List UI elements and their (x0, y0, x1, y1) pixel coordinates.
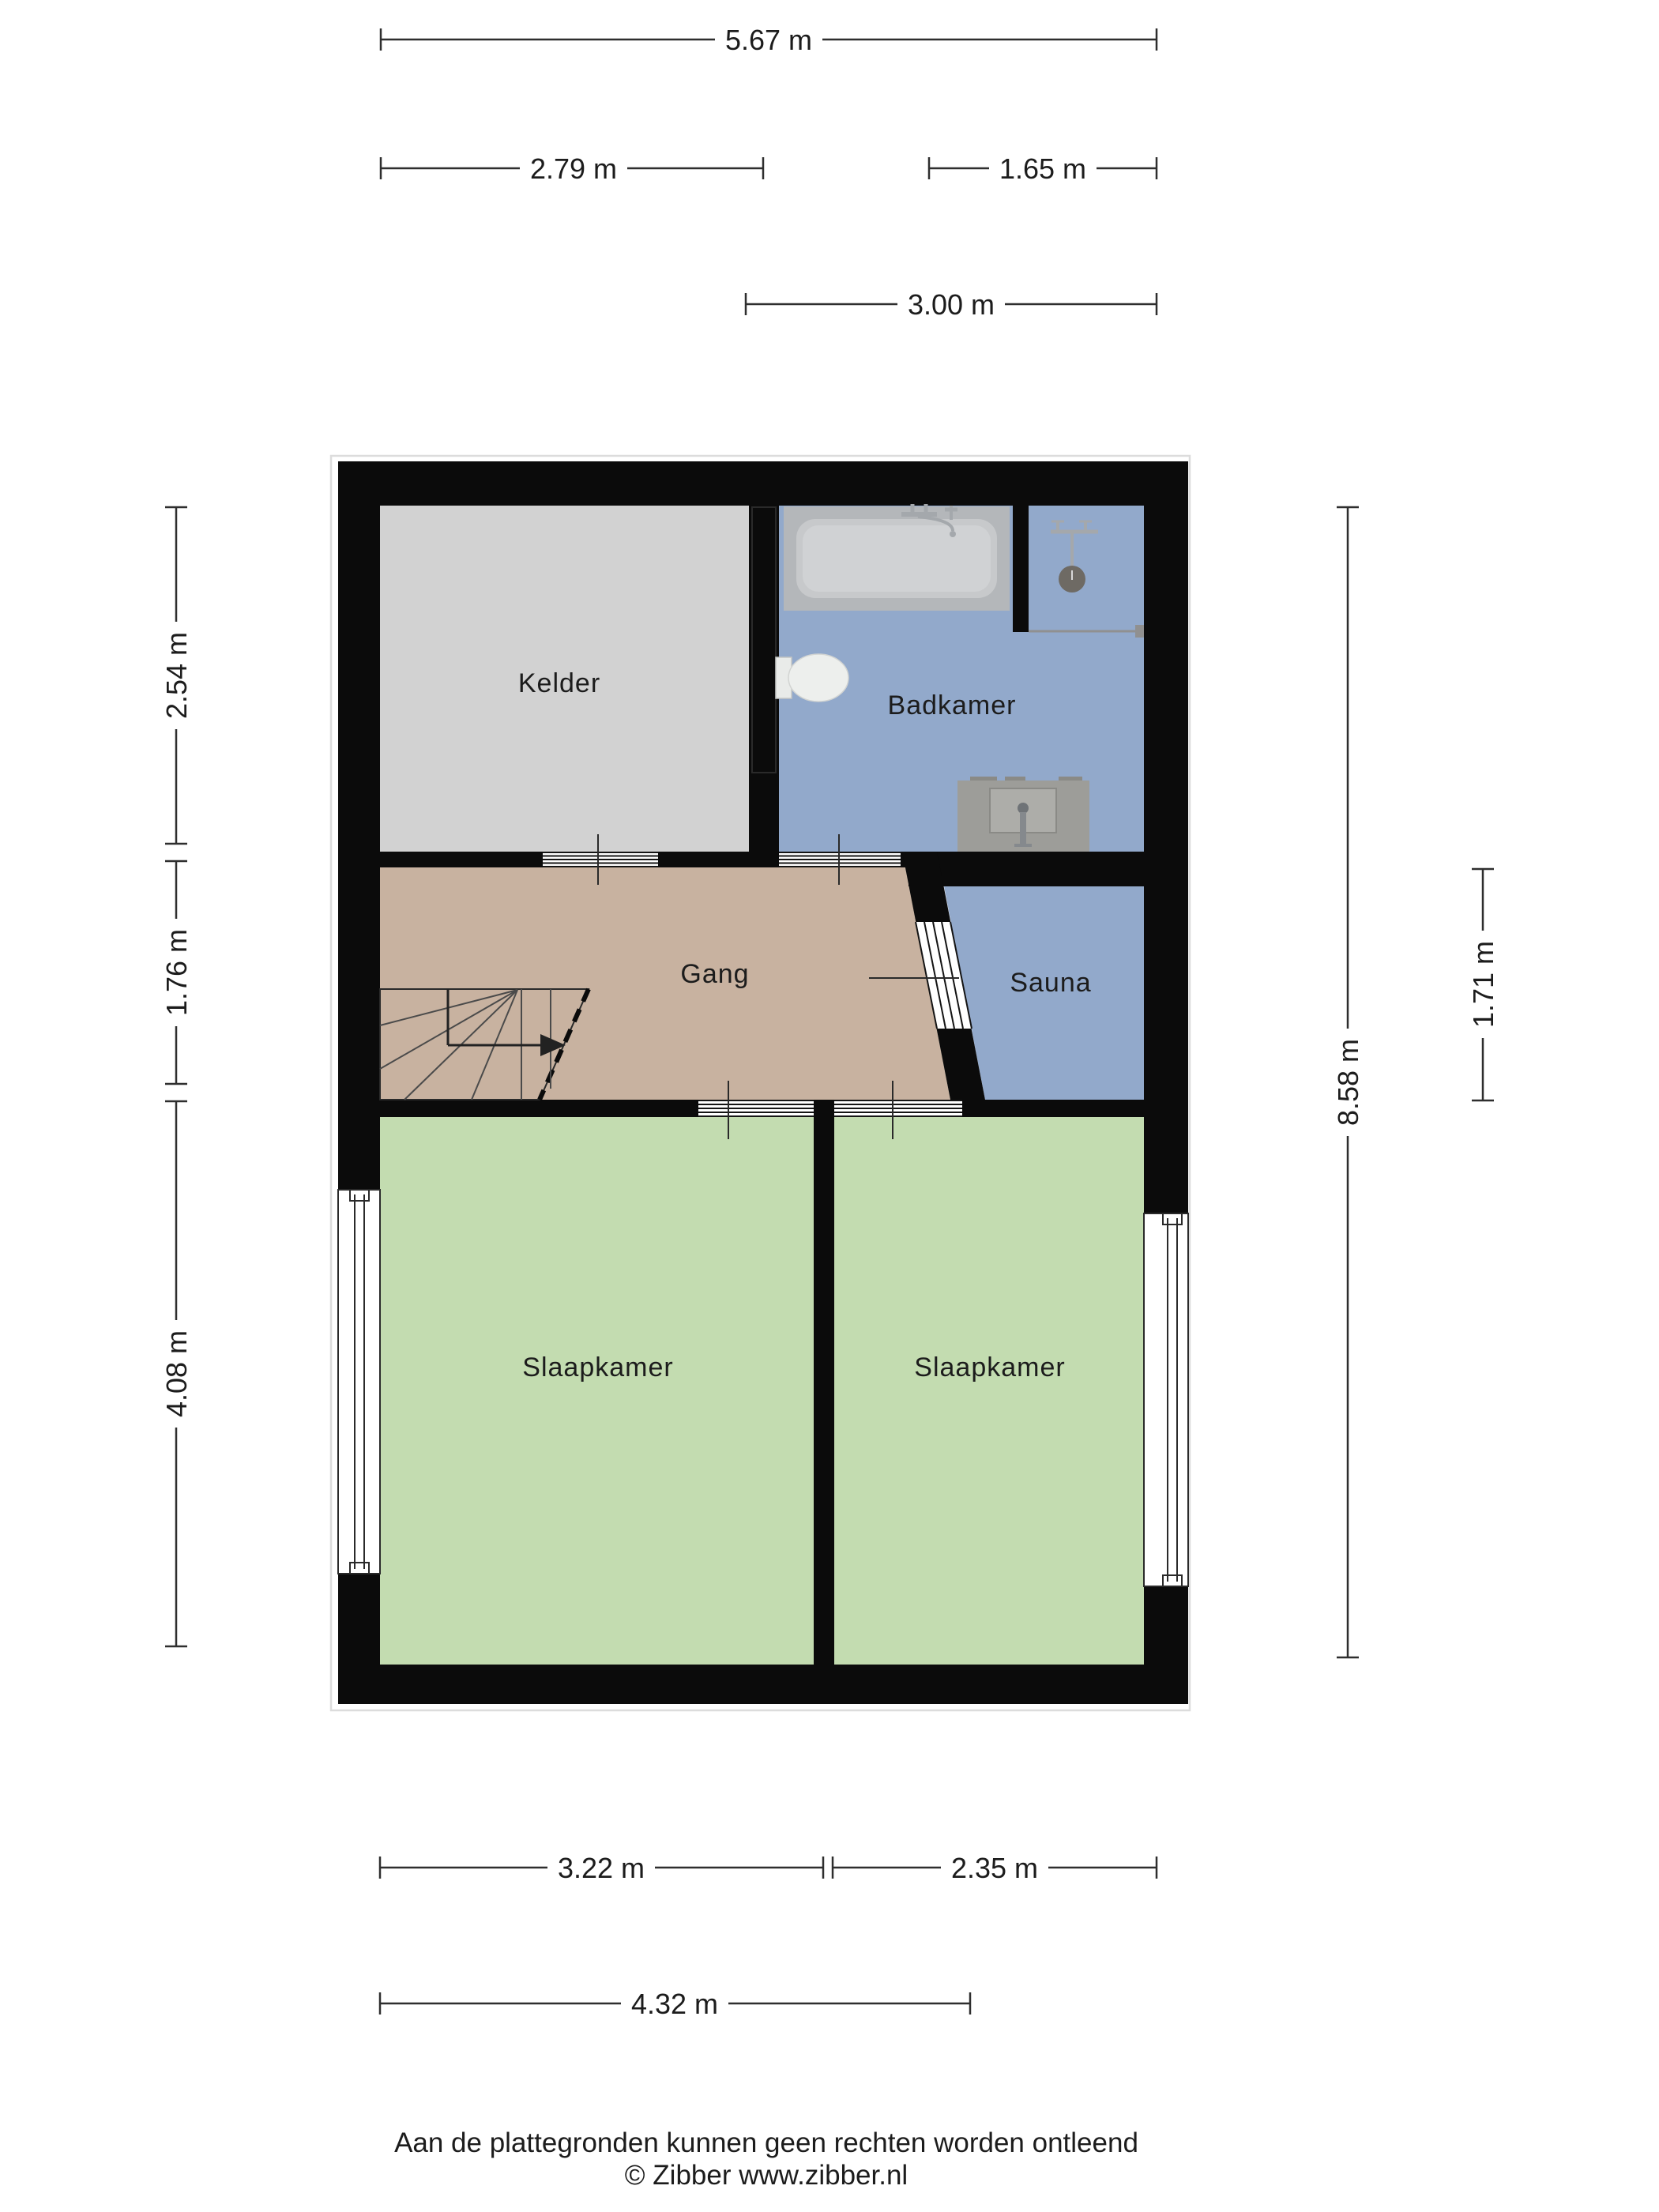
dim-label: 4.32 m (631, 1988, 718, 2020)
wall-gang-top-1 (380, 852, 543, 867)
wall-bottom (338, 1665, 1188, 1704)
room-label-gang: Gang (680, 959, 749, 989)
dim-label: 3.22 m (558, 1852, 645, 1884)
dim-right-total: 8.58 m (1330, 507, 1366, 1657)
dim-top-shower: 1.65 m (929, 150, 1157, 186)
dim-label: 4.08 m (160, 1330, 193, 1417)
room-label-sauna: Sauna (1010, 968, 1091, 998)
dim-right-sauna: 1.71 m (1465, 869, 1501, 1100)
toilet-icon (776, 654, 848, 702)
room-label-badkamer: Badkamer (888, 690, 1017, 720)
window-left (338, 1190, 380, 1574)
room-label-slaapkamer-left: Slaapkamer (522, 1352, 673, 1382)
bathtub-icon (784, 504, 1010, 611)
dim-label: 2.35 m (951, 1852, 1038, 1884)
wall-bedrooms-top-1 (380, 1100, 698, 1117)
dim-label: 2.54 m (160, 632, 193, 719)
dim-label: 1.71 m (1467, 941, 1499, 1028)
wall-bedrooms-top-3 (962, 1100, 1144, 1117)
wall-kelder-badkamer (749, 506, 779, 867)
dim-bottom-slaapkamer-left: 3.22 m (380, 1849, 823, 1886)
floorplan-canvas: Kelder Badkamer Gang Sauna Slaapkamer Sl… (0, 0, 1659, 2212)
dim-label: 1.76 m (160, 929, 193, 1016)
wall-gang-top-2 (658, 852, 749, 867)
wall-top (338, 461, 1188, 506)
wall-right-upper (1144, 461, 1188, 1213)
floorplan-page: Kelder Badkamer Gang Sauna Slaapkamer Sl… (0, 0, 1659, 2212)
room-slaapkamer-left-floor (380, 1117, 814, 1665)
dim-top-badkamer: 3.00 m (746, 286, 1157, 322)
wall-sauna-top-2 (908, 867, 1144, 886)
room-slaapkamer-right-floor (834, 1117, 1144, 1665)
wall-left-upper (338, 461, 380, 1190)
room-label-kelder: Kelder (518, 668, 600, 698)
footer: Aan de plattegronden kunnen geen rechten… (394, 2127, 1138, 2191)
wall-shower-divider (1013, 506, 1029, 632)
dim-label: 8.58 m (1332, 1039, 1364, 1126)
room-gang-floor (380, 867, 950, 1100)
footer-disclaimer: Aan de plattegronden kunnen geen rechten… (394, 2127, 1138, 2158)
dim-label: 5.67 m (725, 24, 812, 56)
dim-label: 3.00 m (908, 288, 995, 321)
sink-icon (957, 777, 1089, 852)
wall-bedroom-divider (814, 1117, 834, 1665)
dim-top-total: 5.67 m (381, 21, 1157, 58)
dim-left-kelder: 2.54 m (158, 507, 194, 844)
dim-label: 1.65 m (999, 152, 1086, 185)
dim-bottom-slaapkamer-right: 2.35 m (833, 1849, 1157, 1886)
footer-copyright: © Zibber www.zibber.nl (625, 2160, 908, 2191)
dim-bottom-total: 4.32 m (380, 1985, 970, 2022)
dim-label: 2.79 m (530, 152, 617, 185)
window-right (1144, 1213, 1188, 1586)
room-label-slaapkamer-right: Slaapkamer (914, 1352, 1065, 1382)
dim-left-slaapkamer: 4.08 m (158, 1101, 194, 1646)
dim-top-kelder: 2.79 m (381, 150, 763, 186)
wall-bedrooms-top-2 (814, 1100, 834, 1117)
dim-left-gang: 1.76 m (158, 861, 194, 1084)
